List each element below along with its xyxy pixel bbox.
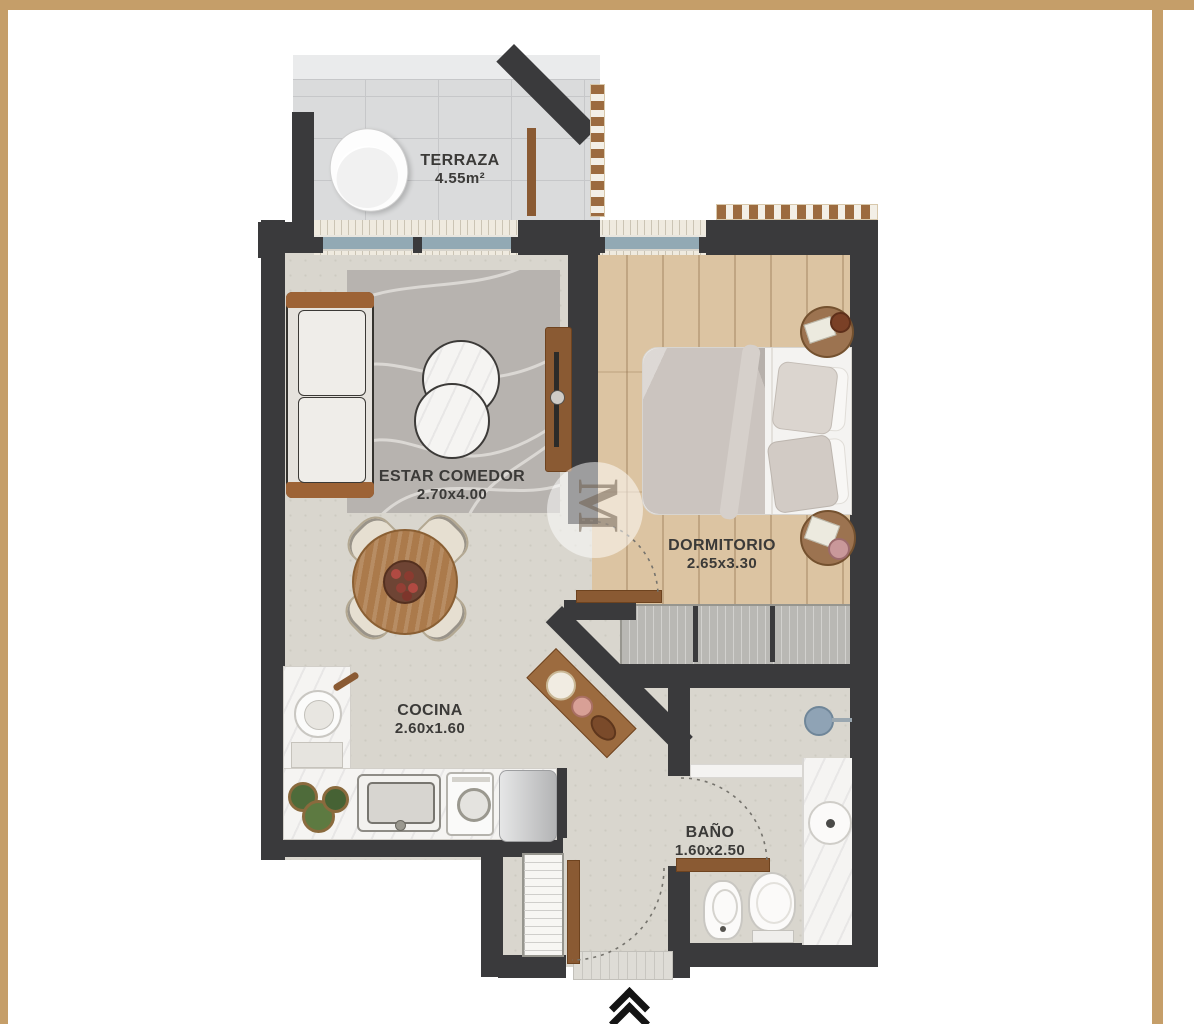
refrigerator	[499, 770, 557, 842]
nightstand-top	[800, 306, 854, 358]
right-main-wall	[850, 220, 878, 967]
terrace-edge-strip	[293, 55, 600, 80]
sink-basin	[367, 782, 435, 824]
tv-console-knob	[550, 390, 565, 405]
room-label-bano: BAÑO 1.60x2.50	[675, 824, 745, 860]
washing-machine	[446, 772, 494, 836]
entry-door-mat	[573, 951, 673, 980]
dormitorio-name: DORMITORIO	[668, 537, 776, 555]
toilet-tank	[752, 930, 794, 943]
frame-left-border	[0, 0, 8, 1024]
bed-pillow-2	[766, 434, 839, 514]
room-label-terraza: TERRAZA 4.55m²	[420, 152, 499, 188]
shower-screen	[690, 764, 806, 778]
bedroom-door-leaf	[576, 590, 662, 603]
room-label-dormitorio: DORMITORIO 2.65x3.30	[668, 537, 776, 573]
sofa-armrest-bottom	[286, 482, 374, 498]
bowl-berries	[391, 569, 401, 579]
exterior-mask-1	[283, 860, 481, 1024]
dining-centerpiece-bowl	[383, 560, 427, 604]
closet-divider-1	[693, 606, 698, 662]
bed	[642, 347, 852, 515]
bedroom-south-wall	[564, 600, 636, 620]
nightstand-bottom-candle	[828, 538, 850, 560]
toilet	[748, 872, 796, 932]
sink-faucet	[395, 820, 406, 831]
sofa	[286, 292, 374, 498]
dormitorio-size: 2.65x3.30	[668, 555, 776, 572]
shower-arm	[832, 718, 852, 722]
entry-closet	[522, 853, 564, 957]
floor-plan-page: M TERRAZA 4.55m² ESTAR COMEDOR 2.70x4.00…	[0, 0, 1194, 1024]
bano-name: BAÑO	[675, 824, 745, 842]
washer-door	[457, 788, 491, 822]
frame-right-border	[1152, 0, 1163, 1024]
toilet-lid-seam	[756, 882, 792, 924]
living-window-cap-left	[314, 237, 323, 253]
left-main-wall	[261, 220, 285, 860]
estar-comedor-size: 2.70x4.00	[379, 486, 525, 503]
kitchen-cutting-board	[291, 742, 343, 768]
coffee-table-lower	[414, 383, 490, 459]
bano-size: 1.60x2.50	[675, 842, 745, 859]
sofa-cushion-1	[298, 310, 366, 396]
bidet-drain	[720, 926, 726, 932]
bedroom-window-glass	[596, 235, 708, 251]
bedroom-louver-strip	[716, 204, 878, 220]
closet-bottom-wall	[616, 664, 854, 688]
nightstand-bottom	[800, 510, 856, 566]
bidet	[703, 880, 743, 940]
sofa-cushion-2	[298, 397, 366, 483]
terrace-post	[527, 128, 536, 216]
terraza-size: 4.55m²	[420, 170, 499, 187]
entry-bottom-wall	[498, 955, 566, 978]
terrace-louver-strip	[590, 84, 605, 217]
exterior-mask-3	[690, 967, 854, 1024]
watermark-monogram: M	[566, 474, 630, 538]
bidet-basin	[712, 889, 738, 925]
sideboard-bowl	[586, 710, 621, 745]
living-room-window	[314, 220, 520, 255]
living-window-cap-mid	[413, 237, 422, 253]
bedroom-closet	[620, 604, 858, 668]
bathroom-marble-strip	[802, 758, 852, 945]
frame-top-border	[0, 0, 1194, 10]
cocina-size: 2.60x1.60	[395, 720, 465, 737]
tv-console	[545, 327, 572, 472]
stove-burner	[294, 690, 342, 738]
terraza-name: TERRAZA	[420, 152, 499, 170]
room-label-estar-comedor: ESTAR COMEDOR 2.70x4.00	[379, 468, 525, 504]
bathroom-sink-drain	[826, 819, 835, 828]
hall-bath-wall-upper	[668, 688, 690, 776]
stove-burner-inner	[304, 700, 334, 730]
cocina-name: COCINA	[395, 702, 465, 720]
bathroom-door-leaf	[676, 858, 770, 872]
estar-comedor-name: ESTAR COMEDOR	[379, 468, 525, 486]
sofa-armrest-top	[286, 292, 374, 308]
closet-divider-2	[770, 606, 775, 662]
nightstand-top-candle	[830, 312, 851, 333]
bed-pillow-1	[771, 361, 839, 436]
bathroom-sink	[808, 801, 852, 845]
bedroom-window	[596, 220, 708, 255]
entry-door-leaf	[567, 860, 580, 964]
washer-panel	[452, 777, 490, 782]
room-label-cocina: COCINA 2.60x1.60	[395, 702, 465, 738]
kitchen-plant-3	[322, 786, 349, 813]
kitchen-sink	[357, 774, 441, 832]
shower-head	[804, 706, 834, 736]
bathroom-south-wall	[690, 943, 854, 967]
